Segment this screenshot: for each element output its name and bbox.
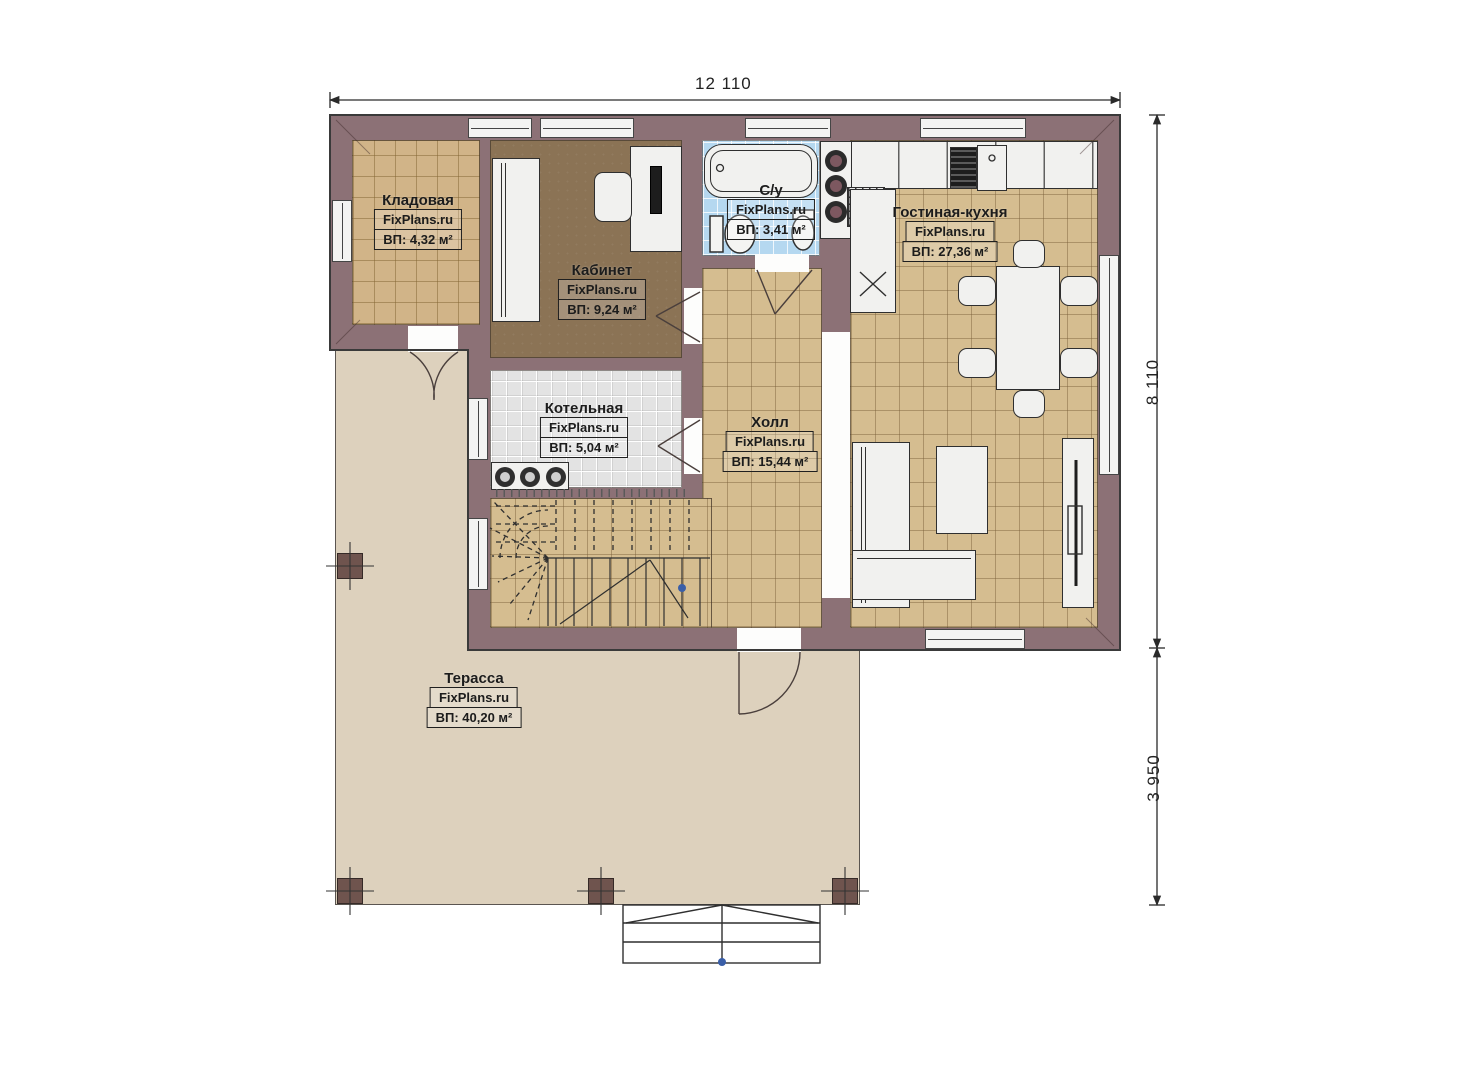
dining-chair-left-2: [958, 348, 996, 378]
window-left-boiler: [468, 398, 488, 460]
passage-hall-kitchen: [822, 332, 850, 598]
room-brand: FixPlans.ru: [540, 417, 628, 438]
room-name: Гостиная-кухня: [893, 204, 1008, 221]
dimension-right-lower-label: 3 950: [1144, 754, 1164, 802]
door-opening-entrance: [737, 628, 801, 652]
dining-table: [996, 266, 1060, 390]
tv-bench: [1062, 438, 1094, 608]
kabinet-monitor: [650, 166, 662, 214]
window-top-bath: [745, 118, 831, 138]
dining-chair-top: [1013, 240, 1045, 268]
window-left-kladovaya: [332, 200, 352, 262]
room-name: Котельная: [545, 400, 624, 417]
room-area: ВП: 40,20 м²: [427, 707, 522, 728]
room-brand: FixPlans.ru: [558, 279, 646, 300]
dining-chair-left-1: [958, 276, 996, 306]
room-area: ВП: 5,04 м²: [540, 437, 628, 458]
room-label-kladovaya: Кладовая FixPlans.ru ВП: 4,32 м²: [374, 192, 462, 250]
dimension-top-label: 12 110: [695, 74, 752, 94]
window-left-stairs: [468, 518, 488, 590]
room-area: ВП: 15,44 м²: [723, 451, 818, 472]
kabinet-sofa: [492, 158, 540, 322]
kabinet-chair: [594, 172, 632, 222]
dimension-line-top: [330, 92, 1120, 108]
room-area: ВП: 27,36 м²: [903, 241, 998, 262]
room-label-kabinet: Кабинет FixPlans.ru ВП: 9,24 м²: [558, 262, 646, 320]
dimension-right-upper-label: 8 110: [1143, 359, 1163, 405]
room-label-hall: Холл FixPlans.ru ВП: 15,44 м²: [723, 414, 818, 472]
room-brand: FixPlans.ru: [727, 199, 815, 220]
entrance-steps: [623, 905, 820, 966]
boiler-equipment-strip: [491, 462, 569, 490]
door-opening-bathroom: [755, 254, 809, 272]
room-area: ВП: 3,41 м²: [727, 219, 815, 240]
coffee-table: [936, 446, 988, 534]
room-label-terrace: Терасса FixPlans.ru ВП: 40,20 м²: [427, 670, 522, 728]
room-name: Холл: [751, 414, 789, 431]
kitchen-stove: [950, 147, 977, 189]
room-label-boiler: Котельная FixPlans.ru ВП: 5,04 м²: [540, 400, 628, 458]
dining-chair-bottom: [1013, 390, 1045, 418]
room-label-bathroom: С/у FixPlans.ru ВП: 3,41 м²: [727, 182, 815, 240]
window-right-living: [1099, 255, 1119, 475]
room-name: С/у: [759, 182, 782, 199]
room-label-living-kitchen: Гостиная-кухня FixPlans.ru ВП: 27,36 м²: [893, 204, 1008, 262]
kitchen-sink: [977, 145, 1007, 191]
room-area: ВП: 9,24 м²: [558, 299, 646, 320]
floor-stairs: [490, 498, 712, 628]
door-opening-kladovaya: [408, 326, 458, 352]
window-top-kabinet: [540, 118, 634, 138]
window-bottom-living: [925, 629, 1025, 649]
floor-plan-canvas: 12 110 8 110 3 950 Кладовая FixPlans.ru …: [0, 0, 1473, 1080]
room-name: Кабинет: [572, 262, 633, 279]
dining-chair-right-1: [1060, 276, 1098, 306]
room-brand: FixPlans.ru: [374, 209, 462, 230]
room-brand: FixPlans.ru: [430, 687, 518, 708]
terrace-post-3: [588, 878, 614, 904]
window-top-1: [468, 118, 532, 138]
terrace-post-1: [337, 553, 363, 579]
terrace-post-2: [337, 878, 363, 904]
dining-chair-right-2: [1060, 348, 1098, 378]
room-name: Кладовая: [382, 192, 454, 209]
door-opening-kabinet: [684, 288, 702, 344]
terrace-post-4: [832, 878, 858, 904]
kitchen-counter-side: [850, 189, 896, 313]
living-sofa-horizontal: [852, 550, 976, 600]
room-area: ВП: 4,32 м²: [374, 229, 462, 250]
window-top-kitchen: [920, 118, 1026, 138]
door-opening-boiler: [684, 418, 702, 474]
room-brand: FixPlans.ru: [726, 431, 814, 452]
room-brand: FixPlans.ru: [906, 221, 994, 242]
room-name: Терасса: [444, 670, 503, 687]
